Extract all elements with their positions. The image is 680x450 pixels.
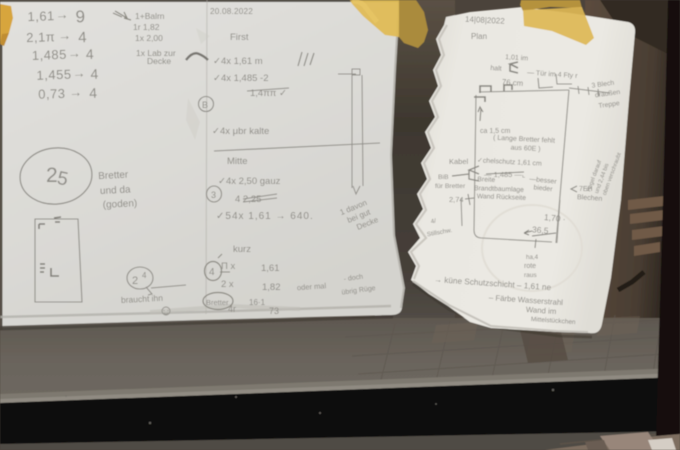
svg-text:und da: und da [100, 184, 132, 197]
svg-text:0,73: 0,73 [38, 86, 66, 102]
svg-text:4: 4 [86, 46, 95, 62]
svg-text:1+Balrn: 1+Balrn [135, 11, 165, 21]
svg-text:4: 4 [142, 271, 147, 280]
svg-text:1r 1,82: 1r 1,82 [133, 22, 160, 32]
svg-text:16·1: 16·1 [249, 298, 266, 307]
svg-text:BiB: BiB [438, 174, 449, 181]
svg-text:✓4x 1,485 -2: ✓4x 1,485 -2 [213, 73, 269, 84]
svg-text:1x 2,00: 1x 2,00 [135, 33, 163, 43]
svg-text:→: → [72, 65, 86, 80]
svg-text:4: 4 [90, 66, 99, 82]
svg-text:2: 2 [132, 275, 138, 287]
svg-text:B: B [202, 100, 208, 110]
svg-text:Mitte: Mitte [227, 156, 248, 167]
svg-text:Breite: Breite [477, 176, 495, 184]
svg-text:Plan: Plan [471, 32, 487, 41]
svg-text:ha,4: ha,4 [526, 254, 539, 261]
svg-text:4 2,25: 4 2,25 [235, 194, 261, 205]
svg-text:✓4x μbr kalte: ✓4x μbr kalte [212, 126, 269, 137]
svg-text:Decke: Decke [147, 56, 171, 66]
svg-text:2 x: 2 x [221, 279, 234, 290]
svg-text:1,61: 1,61 [27, 8, 55, 24]
svg-text:raus: raus [524, 272, 537, 279]
svg-text:4: 4 [89, 85, 98, 101]
svg-text:First: First [230, 32, 249, 43]
svg-text:20.08.2022: 20.08.2022 [210, 7, 253, 16]
svg-text:→: → [55, 7, 69, 22]
svg-text:4r: 4r [228, 304, 236, 314]
svg-text:rote: rote [524, 263, 536, 270]
svg-text:Π x: Π x [221, 261, 236, 272]
svg-text:→: → [68, 45, 82, 60]
svg-text:(goden): (goden) [102, 198, 137, 211]
svg-text:→: → [69, 84, 83, 99]
svg-text:✓54x 1,61 → 640.: ✓54x 1,61 → 640. [216, 211, 314, 222]
svg-text:1,485: 1,485 [32, 47, 68, 63]
svg-text:Bretter: Bretter [98, 170, 129, 183]
svg-text:3: 3 [211, 190, 216, 200]
svg-text:halt: halt [490, 65, 502, 73]
svg-text:✓4x 1,61 m: ✓4x 1,61 m [213, 56, 263, 67]
svg-text:1,61: 1,61 [261, 263, 280, 274]
svg-text:✓4x 2,50 gauz: ✓4x 2,50 gauz [218, 176, 281, 187]
svg-text:1,82: 1,82 [262, 282, 281, 293]
svg-text:Kabel: Kabel [449, 157, 469, 166]
svg-text:2,1π: 2,1π [26, 29, 56, 45]
svg-text:Bretter: Bretter [206, 298, 229, 307]
svg-text:4: 4 [78, 29, 87, 46]
svg-text:9: 9 [75, 7, 86, 26]
svg-text:für Bretter: für Bretter [435, 183, 466, 190]
svg-text:→: → [58, 28, 72, 43]
svg-text:kurz: kurz [233, 244, 251, 255]
svg-text:1,455: 1,455 [36, 67, 72, 83]
svg-text:4: 4 [209, 267, 215, 278]
svg-text:73: 73 [269, 306, 279, 316]
